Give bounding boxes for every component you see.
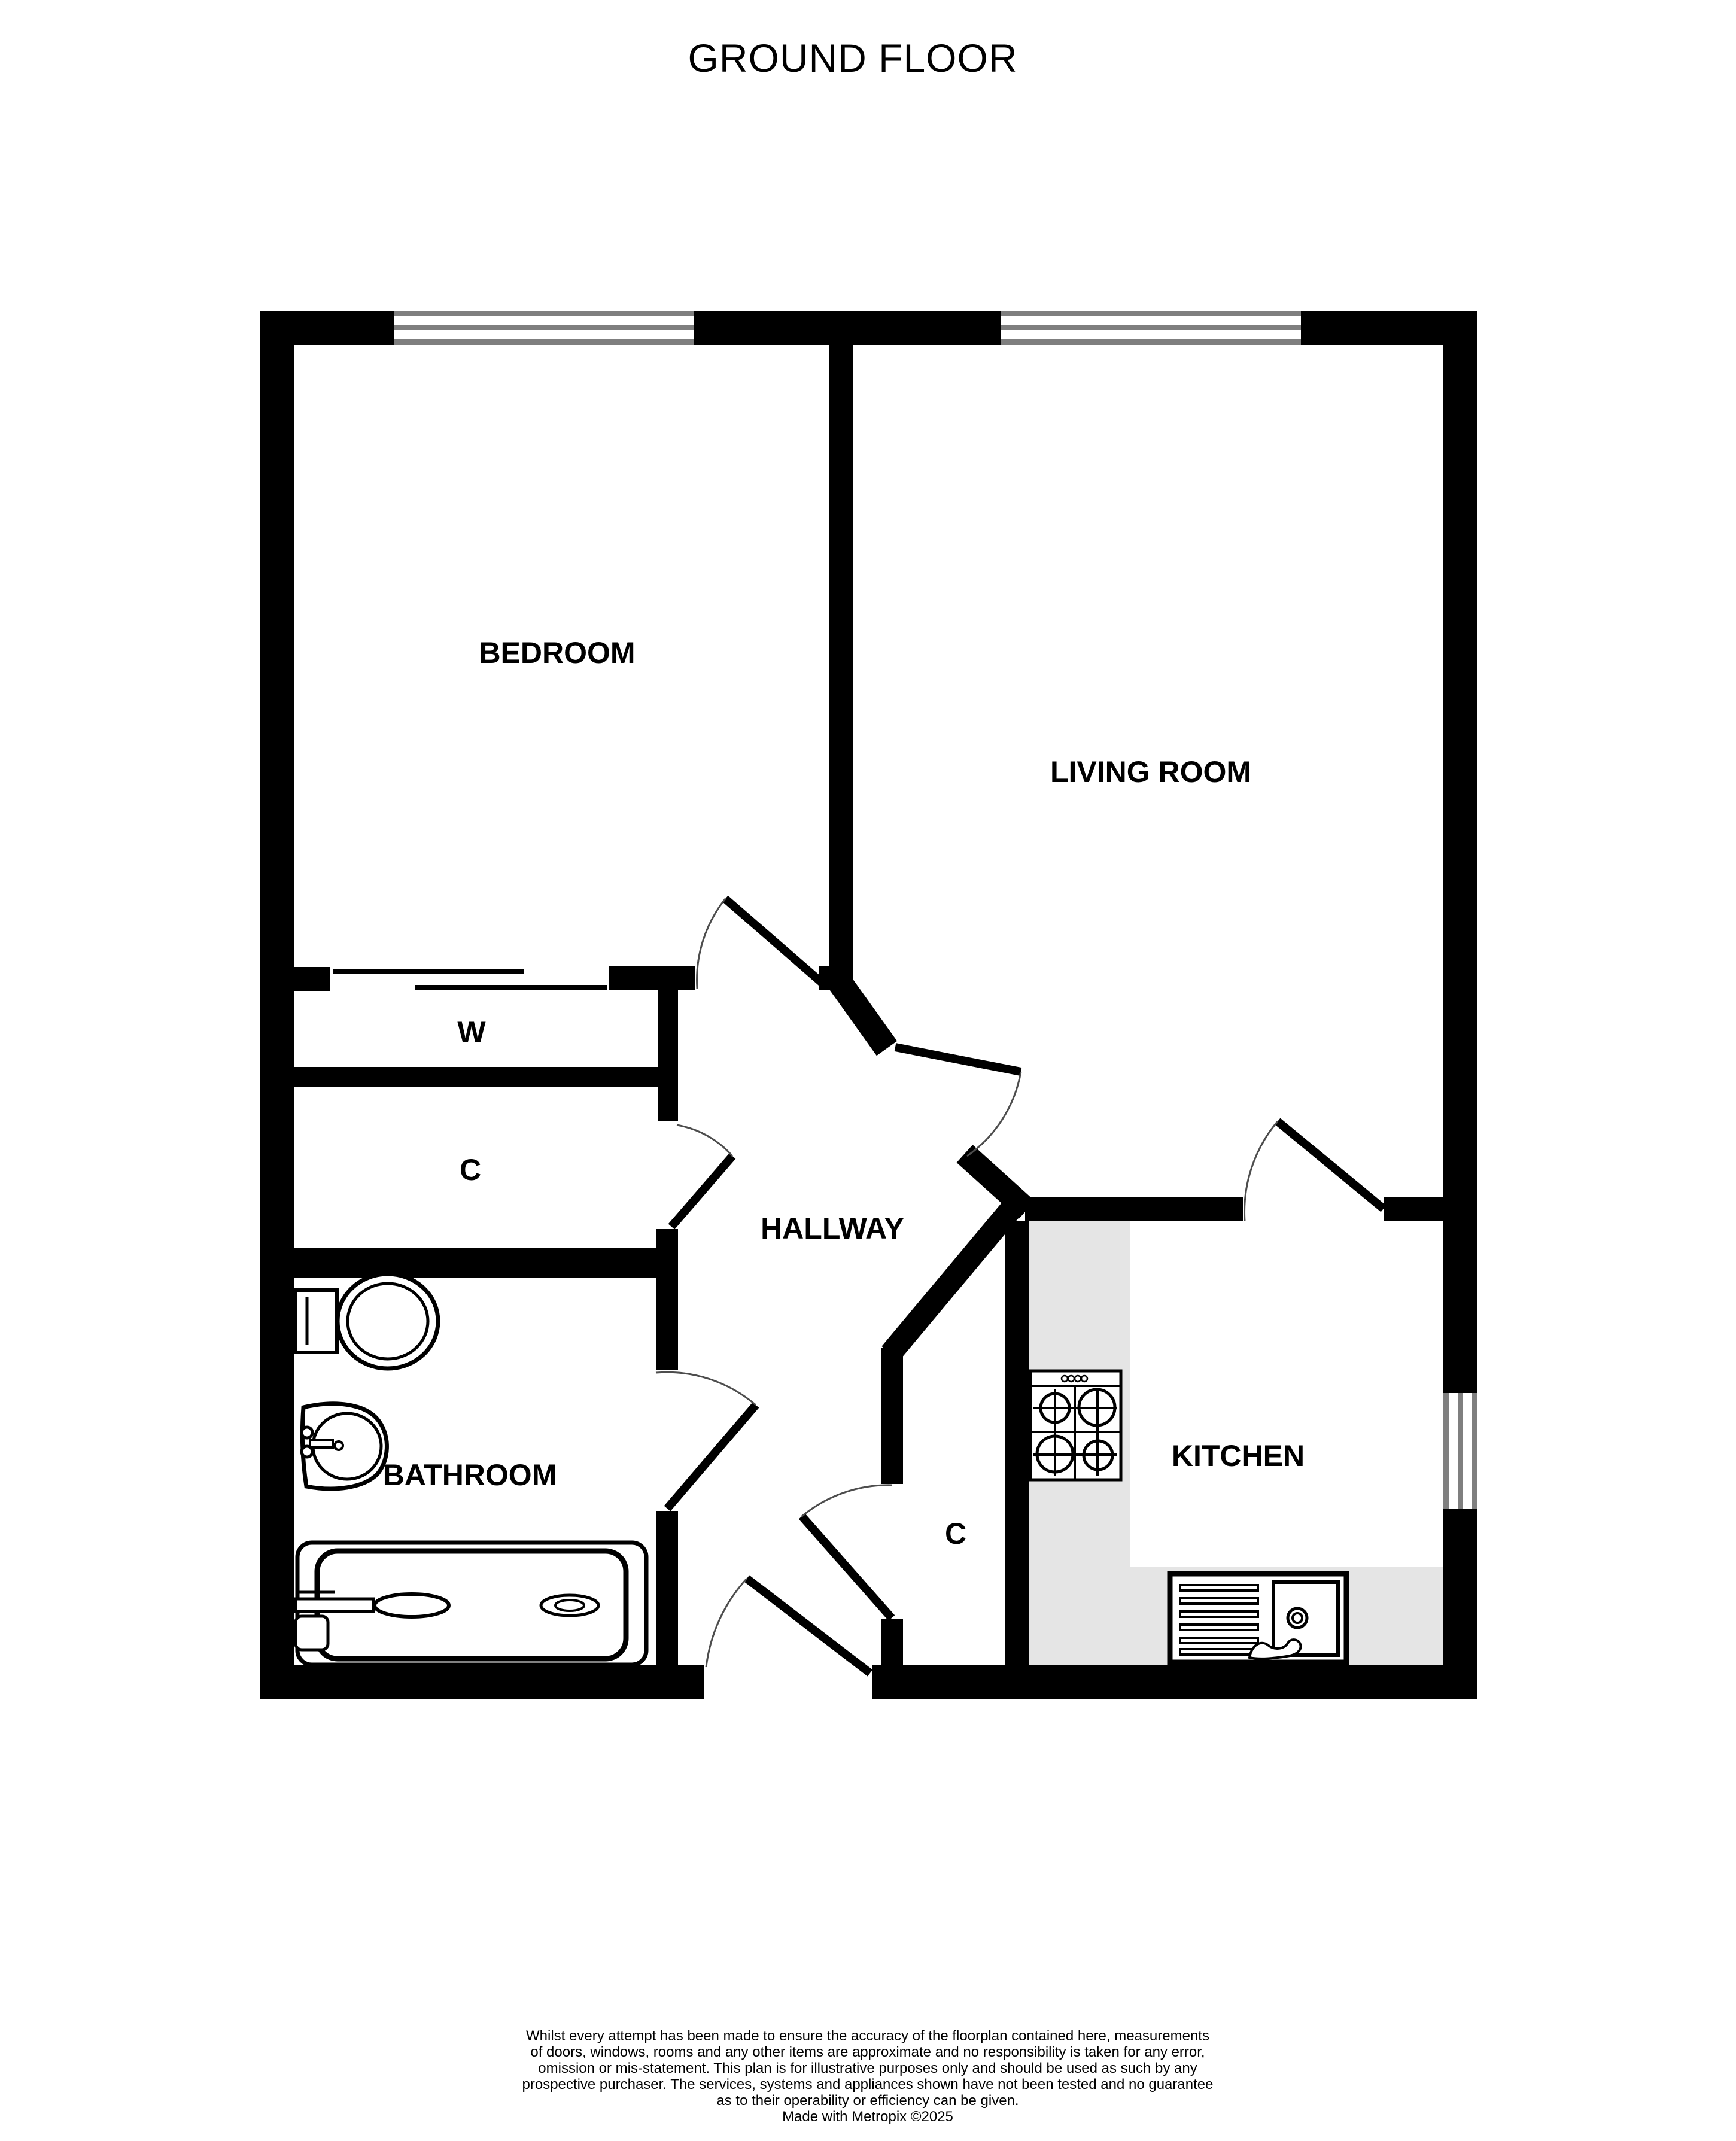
door-leaf	[725, 899, 826, 986]
disclaimer-line: Whilst every attempt has been made to en…	[526, 2028, 1209, 2044]
wall-kitchen-top-left	[1025, 1197, 1243, 1221]
toilet	[295, 1274, 438, 1368]
door-leaf	[667, 1405, 756, 1509]
wall-bedroom-living-divider	[829, 345, 853, 968]
window-line	[394, 311, 694, 316]
kitchen-window	[1443, 1393, 1477, 1509]
wall-angled-hall-living	[839, 981, 887, 1048]
window-line	[394, 325, 694, 330]
cooker-hob	[1030, 1371, 1121, 1480]
toilet-bowl	[338, 1274, 438, 1368]
wall-top-middle	[694, 311, 1001, 345]
wardrobe-sliding-door	[415, 985, 607, 990]
room-label-living-room: LIVING ROOM	[1050, 755, 1251, 789]
kitchen-door	[1245, 1121, 1384, 1221]
kitchen-sink-drainer	[1170, 1574, 1346, 1662]
disclaimer-line: prospective purchaser. The services, sys…	[522, 2076, 1214, 2093]
room-label-hallway: HALLWAY	[761, 1212, 904, 1245]
door-leaf	[747, 1579, 870, 1673]
disclaimer-credit: Made with Metropix ©2025	[782, 2109, 953, 2125]
hall-cupboard-door	[671, 1125, 732, 1227]
wall-hall-left	[658, 987, 678, 1121]
window-line	[394, 339, 694, 345]
room-label-bathroom: BATHROOM	[383, 1458, 557, 1492]
door-leaf	[895, 1047, 1021, 1072]
bath-handle	[375, 1594, 449, 1617]
door-swing-arc	[677, 1125, 732, 1156]
wall-bottom-left	[260, 1665, 704, 1699]
door-swing-arc	[802, 1485, 892, 1516]
wall-bottom-right	[872, 1665, 1477, 1699]
basin-tap	[302, 1427, 312, 1438]
living-room-window	[1001, 311, 1301, 345]
door-leaf	[802, 1516, 892, 1618]
door-swing-arc	[706, 1579, 747, 1667]
room-label-cupboard-kitchen: C	[945, 1517, 966, 1550]
wall-kitchen-left	[1005, 1221, 1029, 1665]
wardrobe-sliding-door	[333, 969, 524, 974]
basin-drain	[335, 1441, 343, 1450]
toilet-cistern	[295, 1290, 337, 1352]
door-swing-arc	[967, 1072, 1021, 1156]
entrance-door	[706, 1579, 870, 1673]
wall-wardrobe-top-left	[293, 967, 330, 991]
door-swing-arc	[1245, 1121, 1278, 1221]
disclaimer-line: omission or mis-statement. This plan is …	[538, 2060, 1197, 2076]
wall-cupboard-bathroom	[287, 1248, 678, 1278]
door-swing-arc	[697, 899, 725, 989]
bath-drain	[541, 1595, 598, 1616]
wall-wardrobe-top-right	[609, 966, 695, 990]
window-line	[1001, 311, 1301, 316]
room-label-kitchen: KITCHEN	[1172, 1439, 1305, 1473]
window-line	[1001, 325, 1301, 330]
wall-bathroom-right-lower	[656, 1511, 678, 1665]
bedroom-door	[697, 899, 826, 989]
window-line	[1458, 1393, 1463, 1509]
window-line	[1443, 1393, 1449, 1509]
room-label-wardrobe: W	[457, 1015, 486, 1049]
bath	[296, 1543, 646, 1665]
door-leaf	[671, 1156, 732, 1227]
room-label-bedroom: BEDROOM	[479, 636, 635, 670]
page-title: GROUND FLOOR	[688, 36, 1017, 80]
basin-spout	[310, 1440, 333, 1447]
window-line	[1472, 1393, 1477, 1509]
bath-soap-dish	[296, 1616, 328, 1650]
bedroom-window	[394, 311, 694, 345]
wall-kitchen-top-right	[1384, 1197, 1443, 1221]
kitchen-cupboard-door	[802, 1485, 892, 1618]
window-line	[1001, 339, 1301, 345]
wall-cupboard-kitchen-stub	[881, 1619, 903, 1665]
wall-right-upper	[1443, 311, 1477, 1393]
disclaimer-line: as to their operability or efficiency ca…	[716, 2093, 1019, 2109]
door-leaf	[1278, 1121, 1384, 1209]
wall-wardrobe-cupboard	[287, 1067, 678, 1087]
living-room-door	[895, 1047, 1021, 1156]
door-swing-arc	[656, 1372, 756, 1405]
disclaimer: Whilst every attempt has been made to en…	[522, 2028, 1214, 2125]
room-label-cupboard-hall: C	[460, 1153, 481, 1187]
bathroom-door	[656, 1372, 756, 1509]
wall-angled-hall-cupboard	[890, 1200, 1019, 1354]
disclaimer-line: of doors, windows, rooms and any other i…	[530, 2044, 1205, 2060]
wash-basin	[302, 1404, 387, 1489]
floor-plan: GROUND FLOOR	[0, 0, 1736, 2141]
bath-spout	[296, 1599, 373, 1611]
wall-cupboard-kitchen-left	[881, 1348, 903, 1484]
wall-left	[260, 311, 294, 1699]
